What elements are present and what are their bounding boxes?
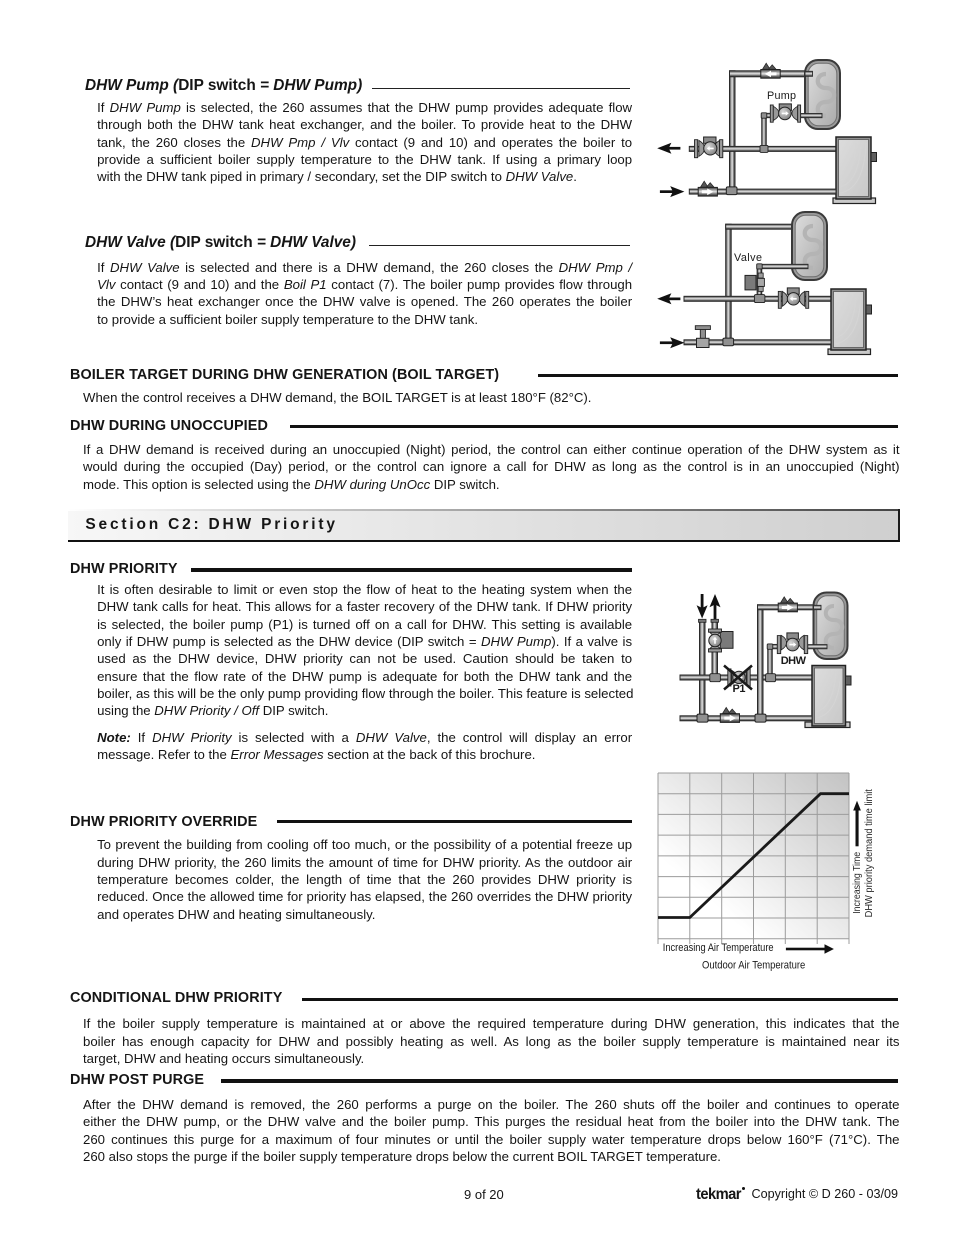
svg-text:DHW priority demand time limit: DHW priority demand time limit bbox=[864, 789, 875, 917]
svg-text:P1: P1 bbox=[733, 683, 746, 695]
svg-text:DHW: DHW bbox=[781, 655, 807, 667]
svg-text:Pump: Pump bbox=[767, 90, 796, 102]
svg-text:Valve: Valve bbox=[734, 252, 762, 264]
svg-text:Increasing Time: Increasing Time bbox=[852, 852, 863, 914]
svg-text:Outdoor Air Temperature: Outdoor Air Temperature bbox=[702, 960, 805, 972]
svg-text:Increasing Air Temperature: Increasing Air Temperature bbox=[663, 942, 774, 954]
